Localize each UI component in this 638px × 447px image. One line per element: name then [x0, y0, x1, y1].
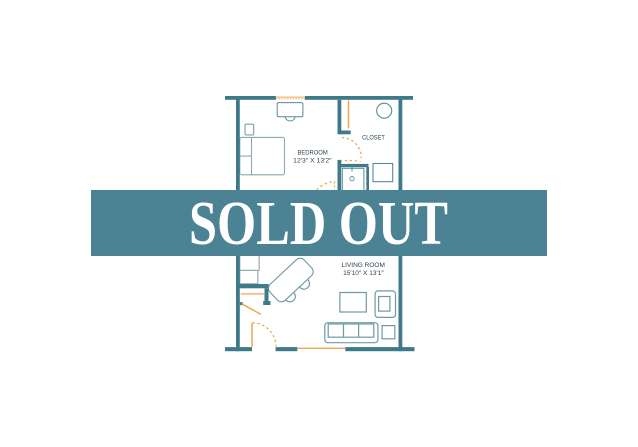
- svg-text:SOLD OUT: SOLD OUT: [189, 190, 448, 258]
